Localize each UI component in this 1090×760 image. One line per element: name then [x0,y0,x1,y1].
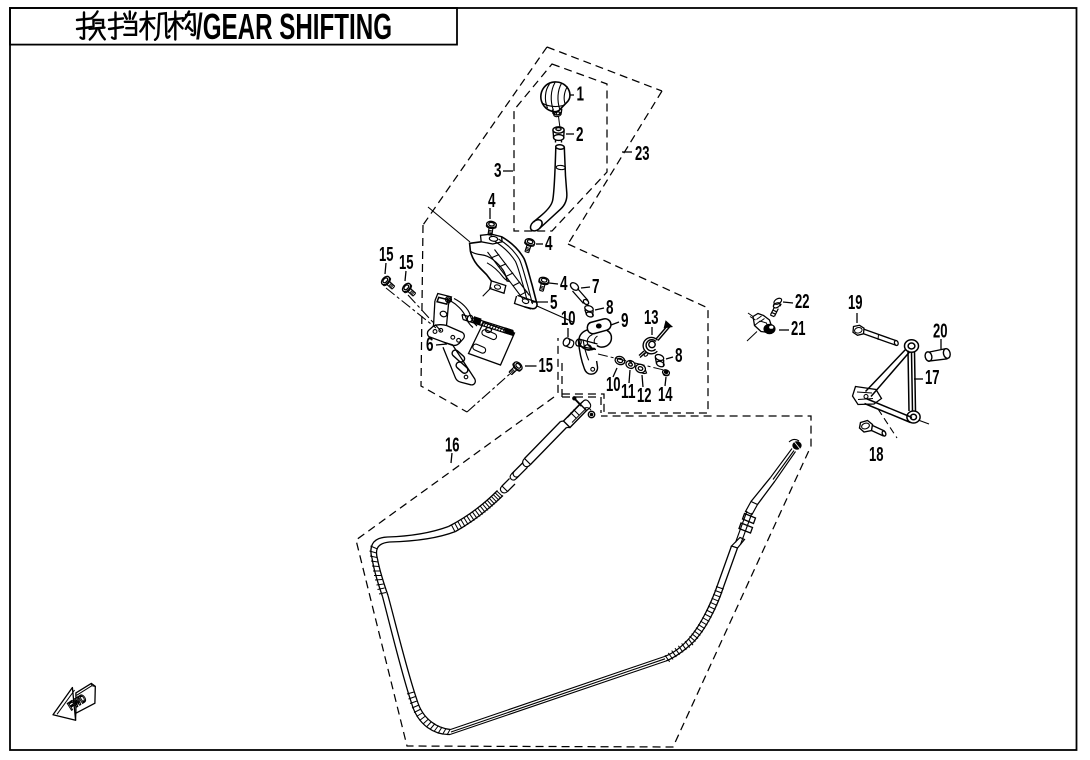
svg-text:9: 9 [621,310,629,332]
svg-text:2: 2 [576,124,584,146]
svg-text:19: 19 [848,292,863,314]
svg-text:23: 23 [635,143,650,165]
svg-text:8: 8 [675,345,683,367]
svg-text:5: 5 [550,292,558,314]
svg-text:22: 22 [795,291,810,313]
svg-text:4: 4 [560,273,568,295]
svg-text:18: 18 [869,444,884,466]
svg-text:17: 17 [925,367,940,389]
svg-text:21: 21 [791,318,806,340]
svg-text:15: 15 [539,355,554,377]
svg-text:10: 10 [561,308,576,330]
svg-text:3: 3 [494,160,502,182]
svg-text:4: 4 [545,233,553,255]
svg-text:11: 11 [621,381,636,403]
svg-text:15: 15 [399,252,414,274]
svg-text:20: 20 [933,321,948,343]
svg-text:10: 10 [606,374,621,396]
svg-text:15: 15 [379,244,394,266]
svg-text:4: 4 [488,190,496,212]
svg-text:8: 8 [606,297,614,319]
svg-text:/GEAR SHIFTING: /GEAR SHIFTING [196,6,392,47]
svg-text:7: 7 [592,276,600,298]
svg-text:1: 1 [577,84,585,106]
svg-text:13: 13 [644,307,659,329]
svg-text:12: 12 [637,385,652,407]
svg-text:14: 14 [658,384,673,406]
